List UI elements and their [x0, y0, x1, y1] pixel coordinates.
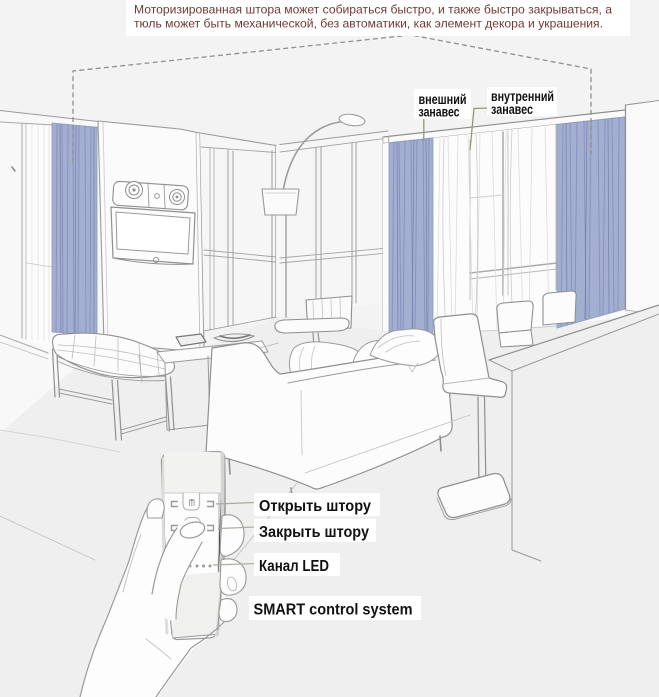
svg-text:занавес: занавес [491, 102, 533, 117]
svg-text:SMART control system: SMART control system [254, 602, 413, 619]
svg-text:занавес: занавес [419, 105, 460, 120]
svg-text:Открыть штору: Открыть штору [259, 498, 371, 515]
svg-text:Закрыть штору: Закрыть штору [259, 524, 369, 541]
svg-text:Канал LED: Канал LED [259, 558, 329, 575]
svg-text:Моторизированная штора может с: Моторизированная штора может собираться … [134, 3, 612, 17]
svg-text:тюль может быть механической,: тюль может быть механической, без автома… [134, 17, 603, 31]
